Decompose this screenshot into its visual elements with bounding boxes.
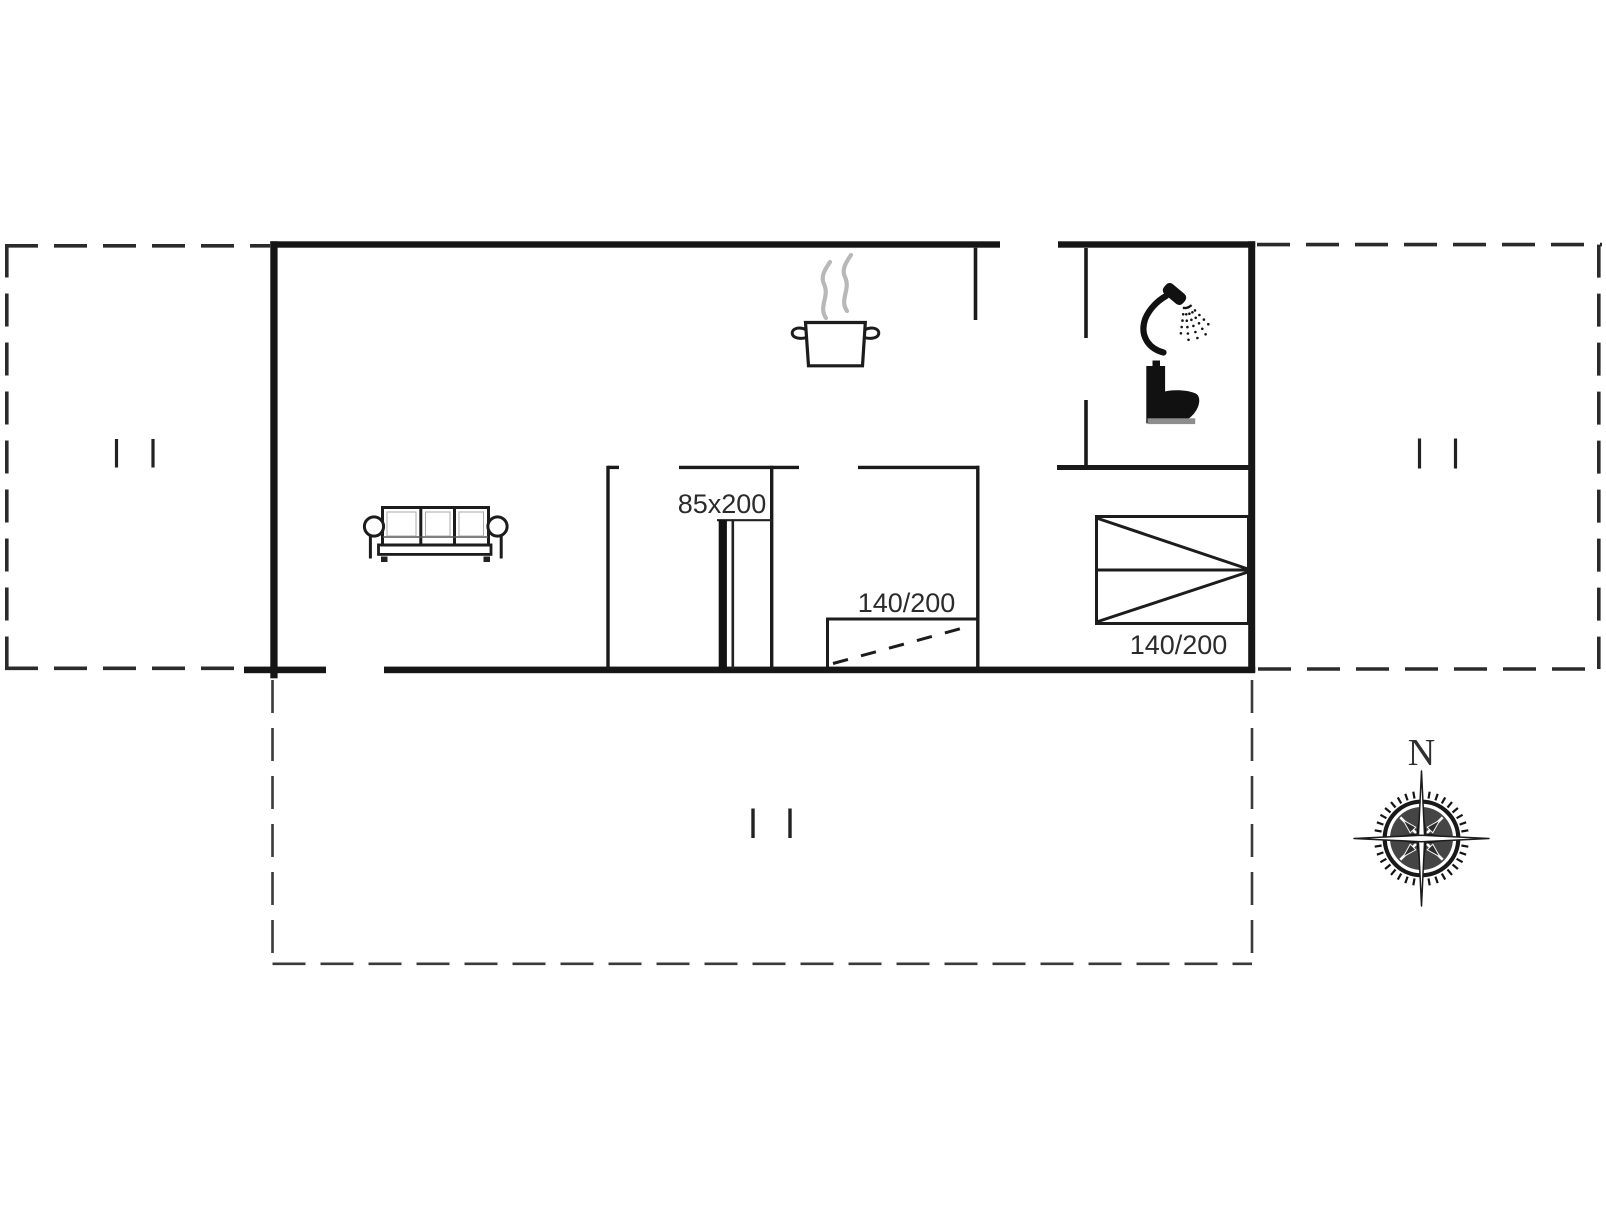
svg-text:85x200: 85x200 [678,489,767,519]
svg-text:140/200: 140/200 [1130,630,1228,660]
svg-text:N: N [1408,732,1435,774]
svg-text:140/200: 140/200 [858,588,956,618]
